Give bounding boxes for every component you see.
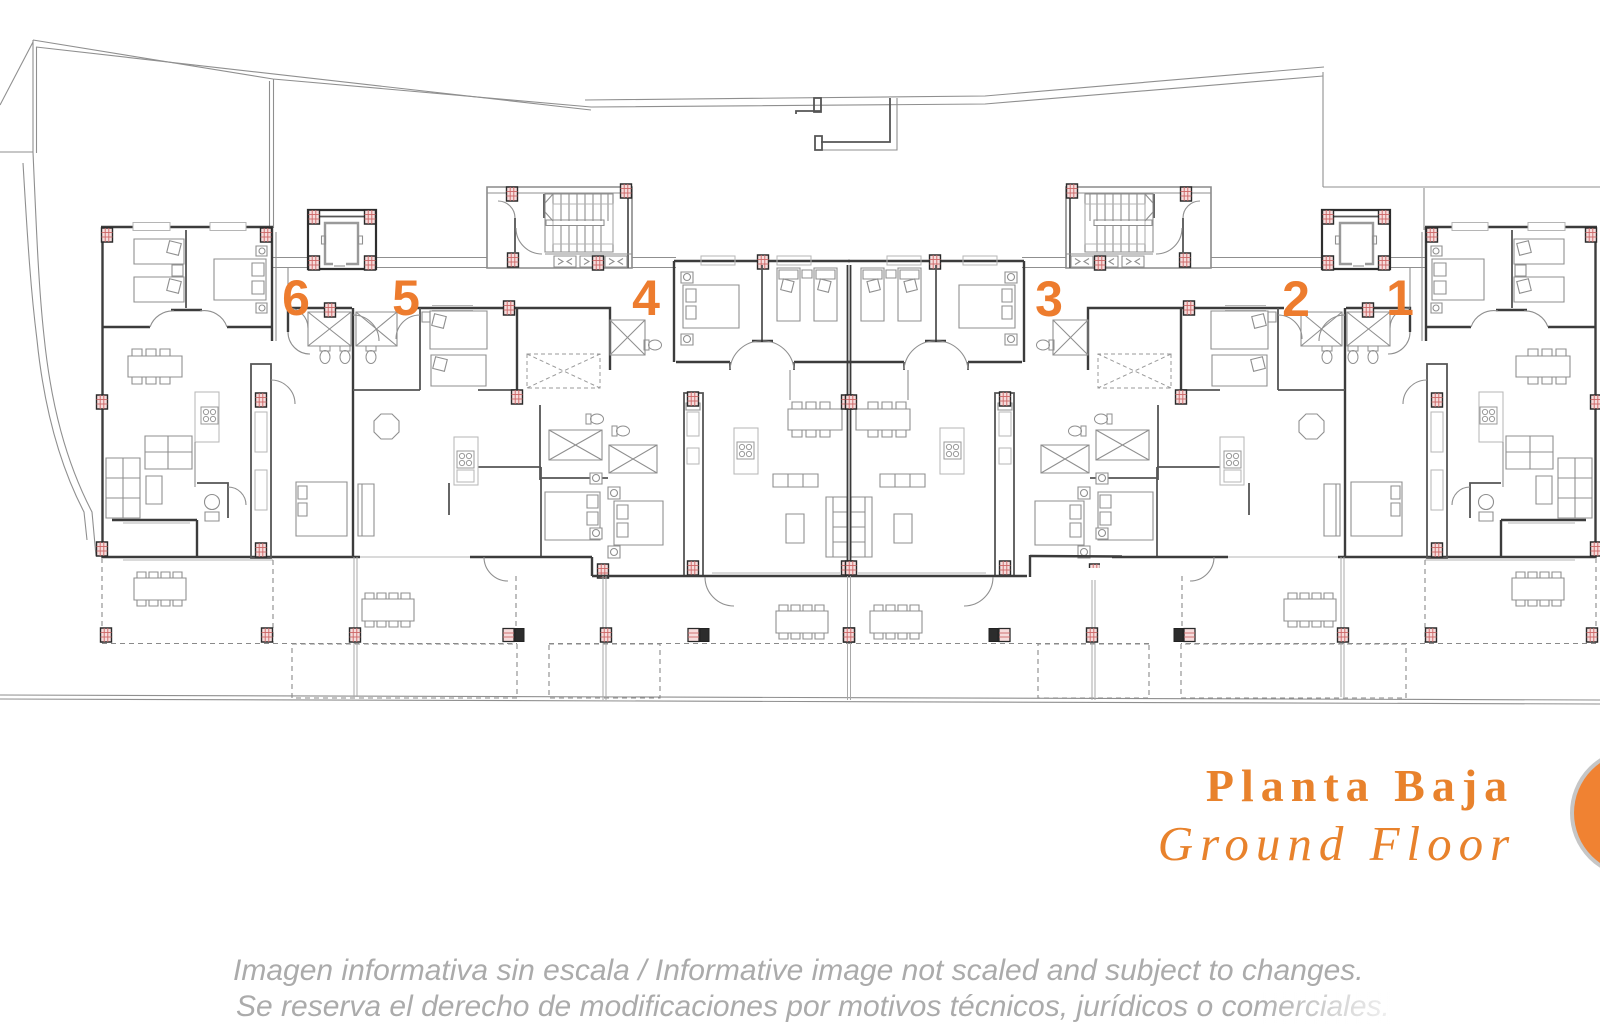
- svg-text:Imagen informativa sin escala: Imagen informativa sin escala / Informat…: [233, 954, 1364, 987]
- svg-text:2: 2: [1282, 271, 1310, 327]
- svg-text:Se reserva el derecho de modif: Se reserva el derecho de modificaciones …: [236, 990, 1390, 1023]
- svg-text:3: 3: [1035, 271, 1063, 327]
- svg-text:4: 4: [632, 270, 660, 326]
- svg-text:6: 6: [282, 270, 310, 326]
- svg-text:Planta Baja: Planta Baja: [1206, 760, 1514, 811]
- svg-text:1: 1: [1386, 270, 1414, 326]
- svg-text:5: 5: [392, 270, 420, 326]
- svg-text:Ground Floor: Ground Floor: [1158, 816, 1517, 871]
